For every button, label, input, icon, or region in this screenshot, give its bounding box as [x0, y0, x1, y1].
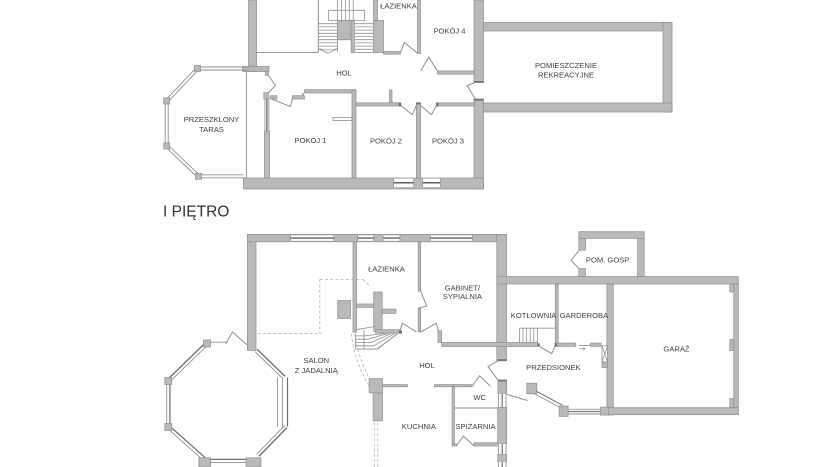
svg-text:POKÓJ 1: POKÓJ 1: [294, 136, 326, 145]
svg-text:POKÓJ 2: POKÓJ 2: [370, 136, 402, 145]
svg-text:REKREACYJNE: REKREACYJNE: [538, 71, 594, 80]
svg-text:KUCHNIA: KUCHNIA: [402, 422, 437, 431]
svg-text:HOL: HOL: [419, 361, 435, 370]
svg-text:SYPIALNIA: SYPIALNIA: [443, 292, 483, 301]
svg-text:GARAŻ: GARAŻ: [663, 345, 690, 354]
svg-text:I PIĘTRO: I PIĘTRO: [163, 204, 229, 221]
svg-text:POKÓJ 3: POKÓJ 3: [432, 136, 464, 145]
svg-text:Z JADALNIĄ: Z JADALNIĄ: [295, 366, 339, 375]
svg-text:PRZESZKLONY: PRZESZKLONY: [184, 115, 240, 124]
svg-text:SPIŻARNIA: SPIŻARNIA: [455, 422, 496, 431]
svg-text:PRZEDSIONEK: PRZEDSIONEK: [526, 363, 580, 372]
svg-text:KOTŁOWNIA: KOTŁOWNIA: [511, 311, 558, 320]
svg-text:ŁAZIENKA: ŁAZIENKA: [380, 2, 418, 11]
svg-text:POMIESZCZENIE: POMIESZCZENIE: [535, 61, 597, 70]
svg-text:ŁAZIENKA: ŁAZIENKA: [368, 264, 406, 273]
svg-text:TARAS: TARAS: [199, 125, 224, 134]
svg-text:GARDEROBA: GARDEROBA: [560, 311, 609, 320]
svg-text:POM. GOSP.: POM. GOSP.: [586, 256, 631, 265]
svg-text:POKÓJ 4: POKÓJ 4: [433, 27, 465, 36]
svg-text:WC: WC: [473, 393, 486, 402]
svg-text:SALON: SALON: [303, 356, 329, 365]
svg-text:HOL: HOL: [336, 69, 352, 78]
